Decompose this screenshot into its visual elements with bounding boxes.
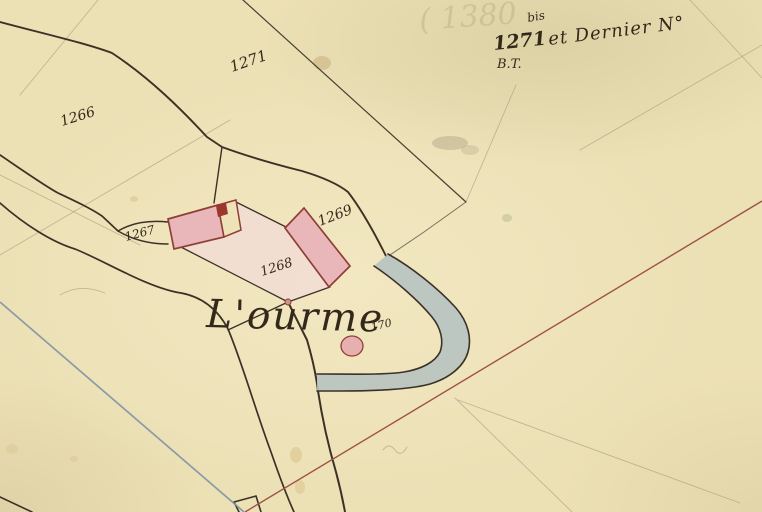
place-name-label: L'ourme (205, 292, 385, 342)
stain-spot (295, 480, 305, 494)
pencil-line (455, 398, 572, 512)
pencil-lines (0, 0, 762, 512)
parcel-label-1271: 1271 (227, 46, 269, 75)
parcel-label-1269: 1269 (316, 202, 355, 230)
title-annotation: bis 1271 et Dernier N° B.T. (492, 8, 686, 72)
boundary-diagonal-return (387, 202, 466, 257)
pencil-line (458, 400, 740, 503)
parcel-labels: 1271 1266 1267 1268 1269 170 (58, 46, 393, 334)
pencil-line (466, 85, 516, 202)
stain-spot (70, 456, 78, 462)
stain-spot (130, 196, 138, 202)
smudge (461, 145, 479, 155)
annotation-initials: B.T. (496, 57, 522, 72)
annotation-bis: bis (526, 8, 546, 25)
cadastral-map-sheet: ( 1380 1271 1266 1267 1268 1269 170 L'ou… (0, 0, 762, 512)
boundary-connector (214, 147, 222, 203)
pencil-squiggle (60, 288, 105, 295)
road-edge-upper (0, 155, 118, 231)
boundary-corner-line (0, 497, 32, 512)
stain-spot (313, 56, 331, 70)
stain-spot (290, 447, 302, 463)
annotation-number: 1271 (492, 28, 547, 55)
annotation-text: et Dernier N° (547, 12, 686, 50)
pencil-line (580, 45, 762, 150)
stain-spot (6, 444, 18, 454)
pencil-line (20, 0, 98, 95)
parcel-label-1266: 1266 (58, 104, 97, 130)
green-mark (502, 214, 512, 222)
pencil-line (690, 0, 762, 78)
pencil-squiggle (383, 446, 407, 453)
map-canvas: ( 1380 1271 1266 1267 1268 1269 170 L'ou… (0, 0, 762, 512)
